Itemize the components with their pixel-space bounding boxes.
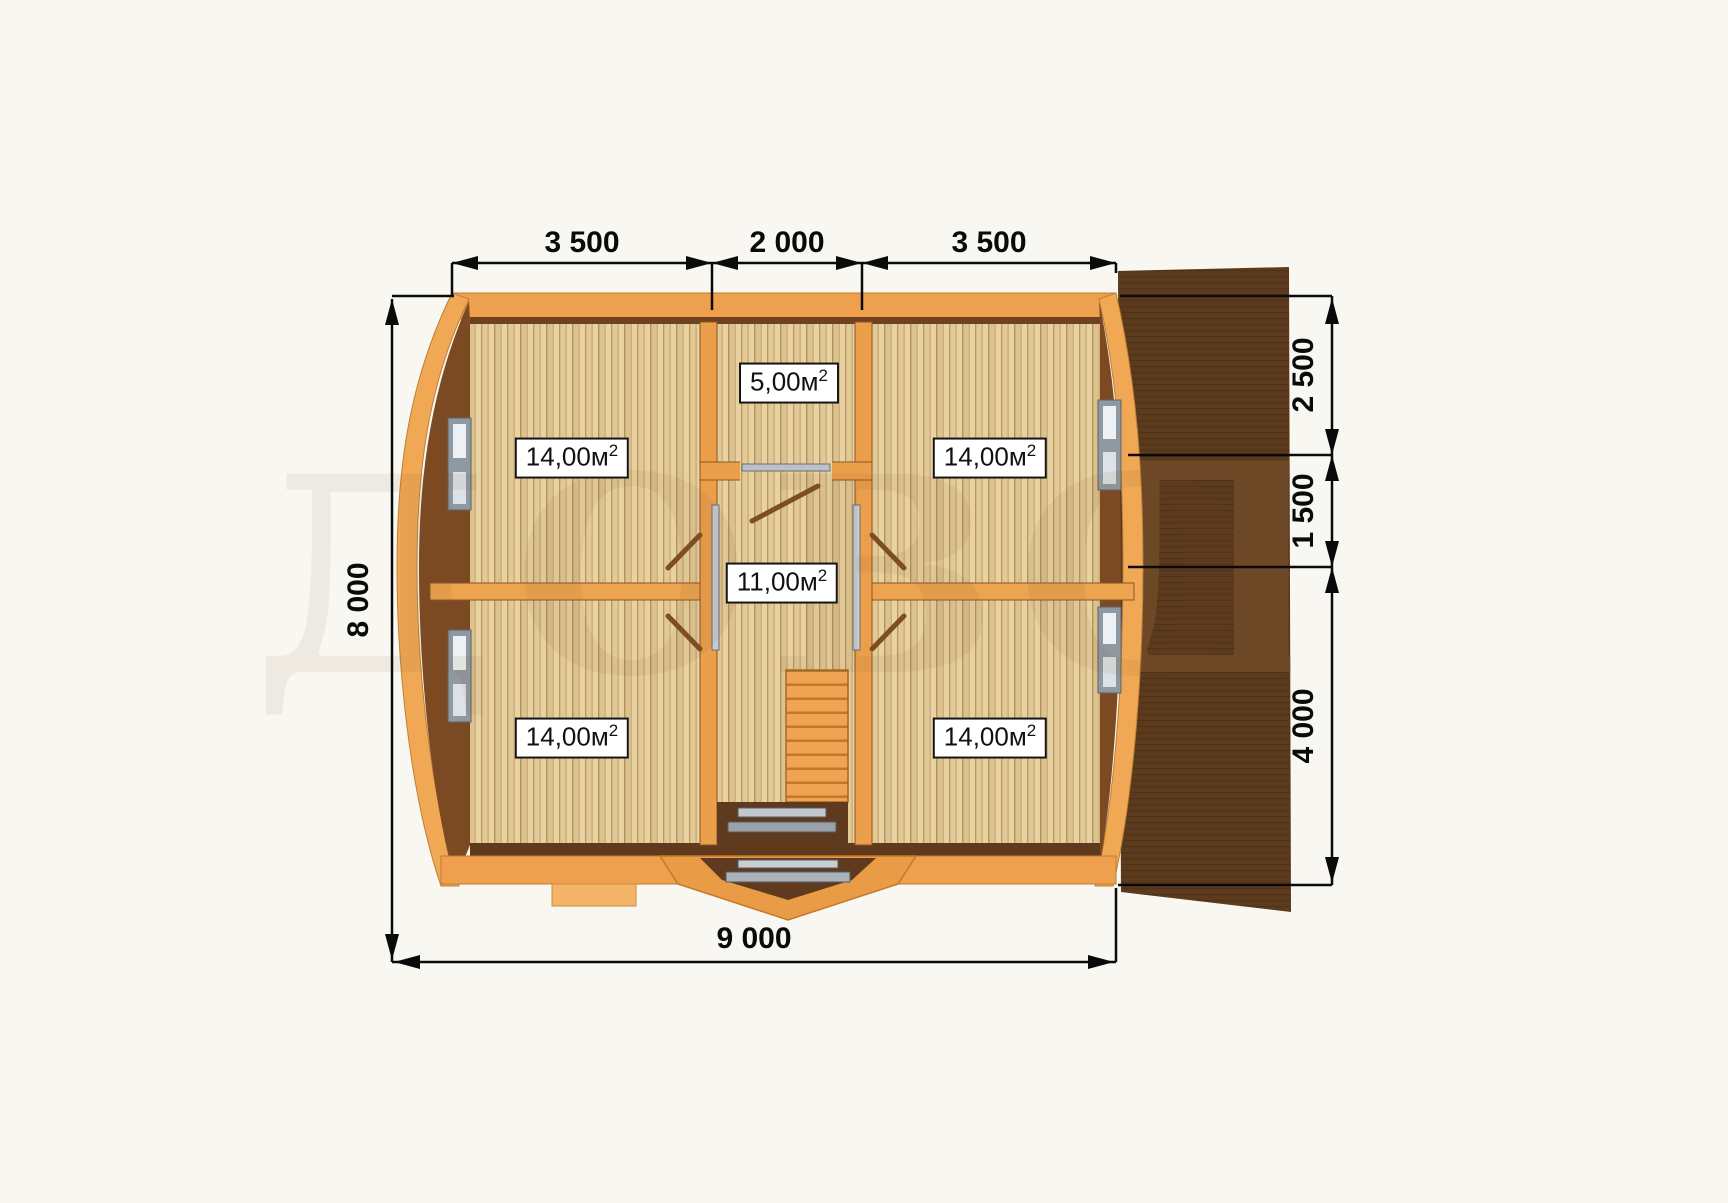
dim-left: 8 000: [342, 562, 375, 637]
porch-step: [726, 872, 850, 882]
entry-step: [728, 822, 836, 832]
dim-top-1: 3 500: [544, 226, 619, 259]
room-label-bottom-left: 14,00м2: [515, 718, 629, 759]
room-label-top-right: 14,00м2: [933, 438, 1047, 479]
dim-bottom: 9 000: [716, 922, 791, 955]
dim-top-2: 2 000: [749, 226, 824, 259]
floor-plan-rendering: Д: [0, 0, 1728, 1203]
porch-step: [738, 860, 838, 868]
dim-right-1: 2 500: [1287, 337, 1320, 412]
room-label-hall: 11,00м2: [726, 563, 838, 604]
dim-right-3: 4 000: [1287, 688, 1320, 763]
room-label-top-center: 5,00м2: [739, 363, 839, 404]
dim-top-3: 3 500: [951, 226, 1026, 259]
dim-right-2: 1 500: [1287, 473, 1320, 548]
side-step: [552, 884, 636, 906]
room-label-bottom-right: 14,00м2: [933, 718, 1047, 759]
room-label-top-left: 14,00м2: [515, 438, 629, 479]
entry-step: [738, 808, 826, 817]
floor-plan-image: Д: [0, 0, 1728, 1203]
